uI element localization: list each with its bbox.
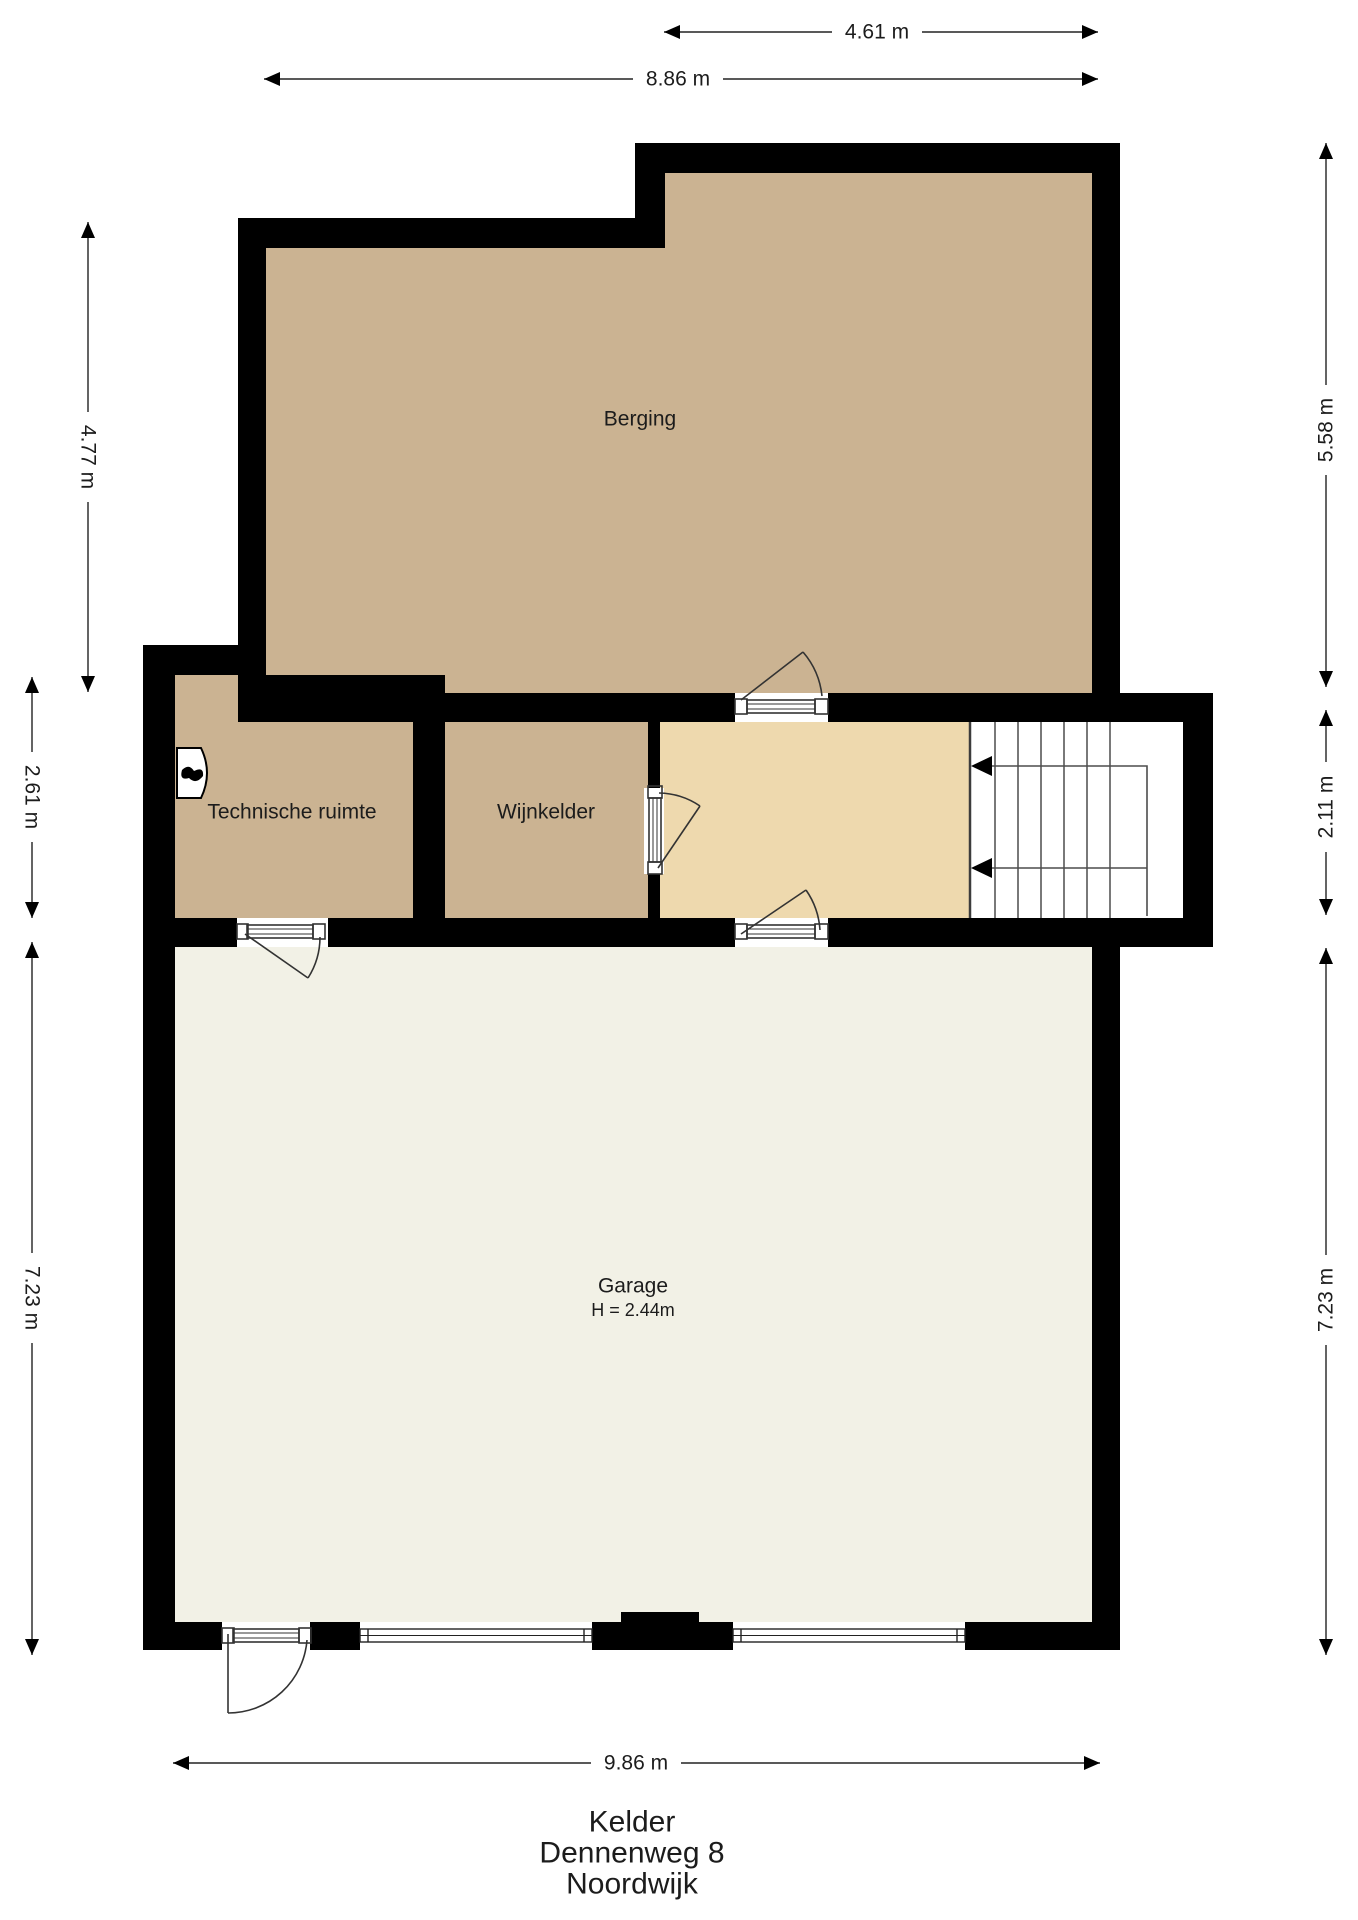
label-wijnkelder: Wijnkelder	[497, 801, 595, 824]
dim-right-211: 2.11 m	[1312, 710, 1340, 915]
dim-bottom-986: 9.86 m	[173, 1749, 1100, 1777]
berging-floor	[266, 173, 1092, 693]
title-street: Dennenweg 8	[539, 1837, 724, 1870]
wall-pilaster	[621, 1612, 699, 1623]
title-floor: Kelder	[589, 1806, 676, 1839]
dim-label-886: 8.86 m	[646, 68, 710, 91]
dim-label-986: 9.86 m	[604, 1752, 668, 1775]
berging-floor-step	[665, 173, 1092, 248]
window-garage-left	[360, 1622, 592, 1650]
dim-label-723-left: 7.23 m	[21, 1266, 44, 1330]
floors	[175, 173, 1183, 1622]
stairs-floor	[970, 722, 1183, 918]
floorplan-title: Kelder Dennenweg 8 Noordwijk	[539, 1806, 724, 1901]
dim-label-261: 2.61 m	[21, 765, 44, 829]
label-berging: Berging	[604, 408, 676, 431]
dim-label-461: 4.61 m	[845, 21, 909, 44]
dim-right-558: 5.58 m	[1312, 143, 1340, 687]
floorplan-svg: 4.61 m 8.86 m 4.77 m 2.61 m	[0, 0, 1358, 1920]
dim-left-261: 2.61 m	[18, 677, 46, 918]
label-technische-ruimte: Technische ruimte	[207, 801, 376, 824]
dim-left-477: 4.77 m	[74, 222, 102, 692]
dim-label-477: 4.77 m	[77, 425, 100, 489]
door-garage-exterior	[222, 1622, 311, 1713]
boiler-icon	[177, 748, 207, 798]
window-garage-right	[733, 1622, 965, 1650]
label-garage: Garage	[598, 1275, 668, 1298]
dim-top-886: 8.86 m	[264, 65, 1098, 93]
dim-top-461: 4.61 m	[664, 18, 1098, 46]
dim-label-558: 5.58 m	[1315, 398, 1338, 462]
label-garage-height: H = 2.44m	[591, 1300, 675, 1320]
dim-left-723: 7.23 m	[18, 942, 46, 1655]
dim-right-723: 7.23 m	[1312, 948, 1340, 1655]
hall-floor	[660, 722, 970, 918]
title-city: Noordwijk	[566, 1868, 699, 1901]
floorplan-page: 4.61 m 8.86 m 4.77 m 2.61 m	[0, 0, 1358, 1920]
dim-label-723-right: 7.23 m	[1315, 1268, 1338, 1332]
dim-label-211: 2.11 m	[1315, 776, 1338, 839]
